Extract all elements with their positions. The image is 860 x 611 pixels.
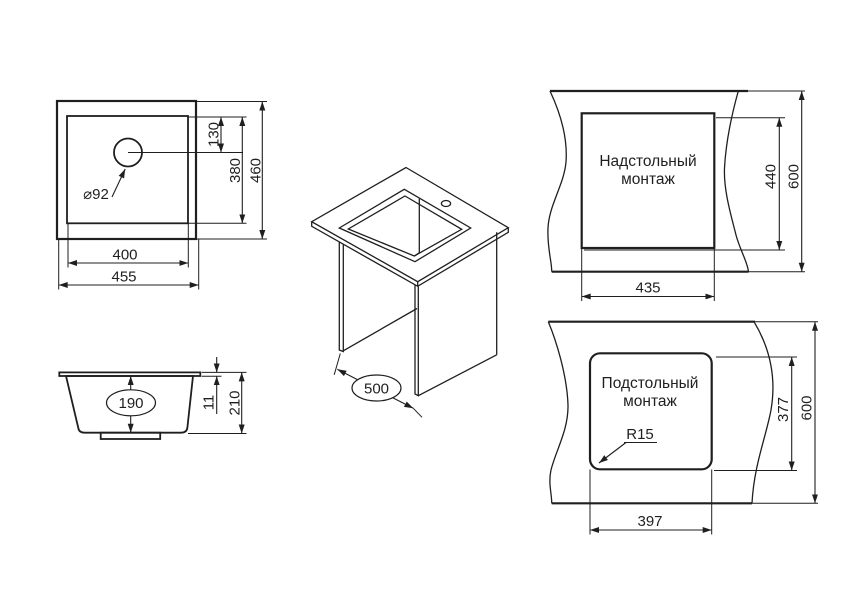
dim-label-190: 190	[118, 395, 143, 412]
dim-label-hole-diameter: ⌀92	[83, 186, 109, 203]
cabinet-left-panel	[339, 242, 417, 352]
dim-label-11: 11	[201, 395, 218, 411]
section-view: 190 11 210	[59, 357, 246, 439]
dim-label-377: 377	[775, 397, 792, 422]
sink-rim-inner	[348, 196, 461, 256]
sink-bowl-contour	[67, 116, 188, 223]
counter-edges	[548, 322, 755, 504]
bowl-corner-edge	[415, 199, 420, 256]
undermount-cutout	[590, 353, 712, 469]
undermount-view: Подстольный монтаж R15 377 600 397	[548, 322, 818, 535]
undermount-title-line2: монтаж	[623, 393, 677, 410]
dim-label-500: 500	[364, 380, 389, 397]
sink-base-profile	[101, 433, 161, 439]
left-break-line	[548, 322, 568, 504]
dim-label-400: 400	[112, 247, 137, 264]
dim-label-380: 380	[227, 158, 244, 183]
hole-leader-line	[112, 169, 125, 197]
sink-technical-drawing-page: 130 380 460 400 455 ⌀92 190 11 210	[0, 0, 860, 611]
countertop-face	[312, 168, 509, 282]
dim-label-130: 130	[206, 122, 223, 147]
dim-label-397: 397	[637, 513, 662, 530]
undermount-title-line1: Подстольный	[602, 375, 699, 392]
cabinet-right-panel	[415, 232, 497, 395]
dim-label-440: 440	[763, 164, 780, 189]
dim-label-455: 455	[111, 269, 136, 286]
left-break-line	[548, 91, 566, 272]
dim-label-460: 460	[248, 158, 265, 183]
sink-outer-contour	[57, 101, 196, 239]
sink-rim-outer	[339, 189, 470, 261]
dim-label-600-over: 600	[786, 164, 803, 189]
dim-label-210: 210	[227, 390, 244, 415]
faucet-hole-iso	[441, 201, 450, 207]
dim-label-600-under: 600	[799, 395, 816, 420]
isometric-view: 500	[312, 168, 509, 418]
radius-leader-line	[599, 443, 626, 464]
dim-label-435: 435	[635, 280, 660, 297]
dim-label-r15: R15	[626, 426, 654, 443]
top-view: 130 380 460 400 455 ⌀92	[57, 101, 267, 290]
overmount-title-line1: Надстольный	[599, 153, 696, 170]
sink-technical-drawing: 130 380 460 400 455 ⌀92 190 11 210	[0, 0, 860, 611]
overmount-view: Надстольный монтаж 440 600 435	[548, 91, 805, 301]
right-break-line	[752, 322, 773, 504]
overmount-title-line2: монтаж	[621, 171, 675, 188]
